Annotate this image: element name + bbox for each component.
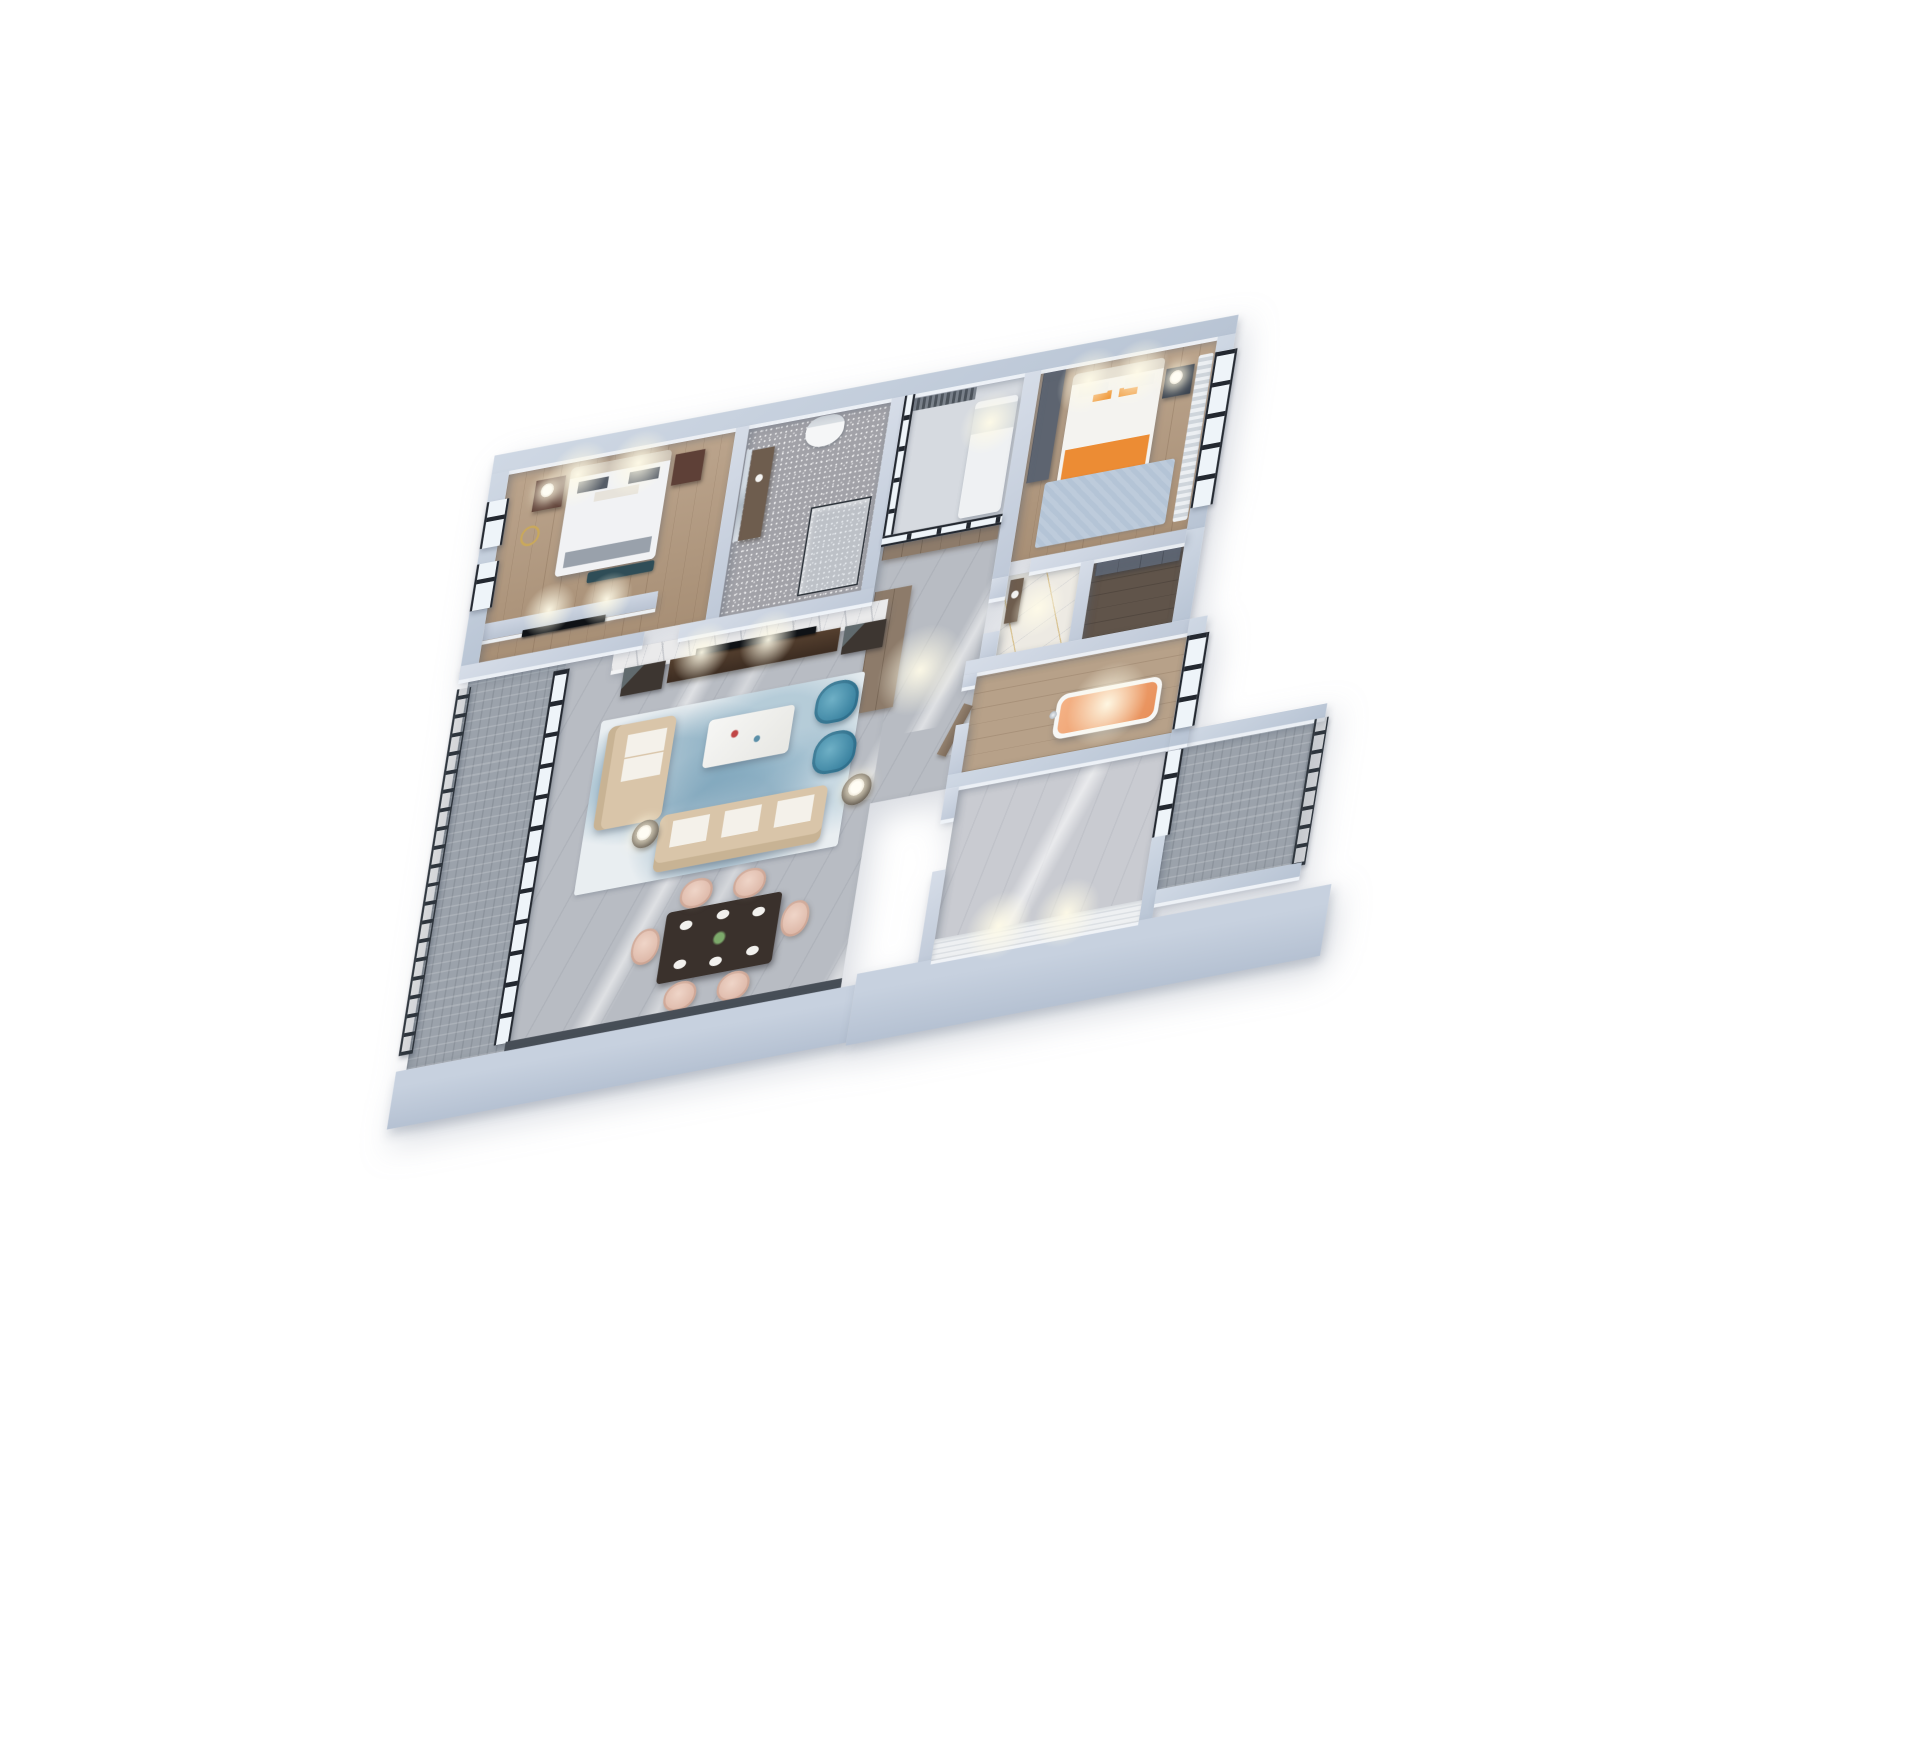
apartment-floorplan	[357, 247, 1433, 1135]
rendering-canvas	[0, 0, 1920, 1754]
